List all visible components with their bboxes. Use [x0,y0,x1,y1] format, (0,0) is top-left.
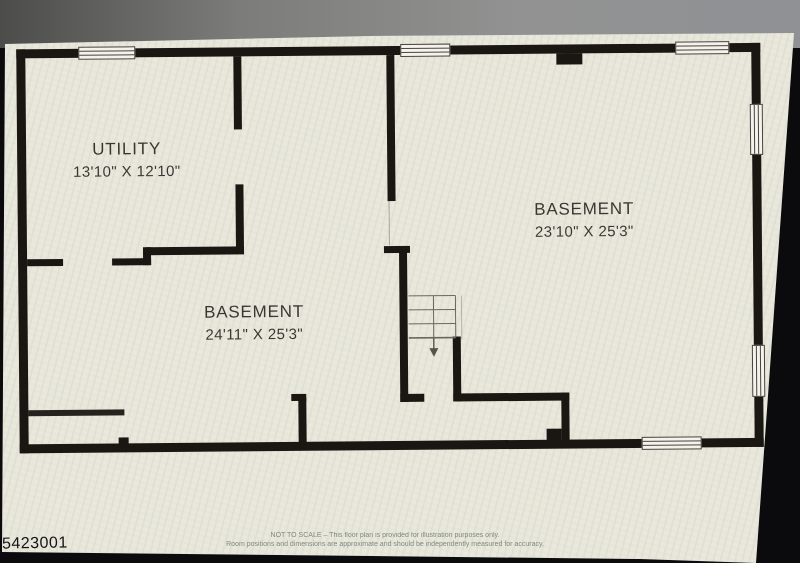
partition-end-bump [119,437,129,444]
wall-lower-horizontal [453,393,569,402]
wall-lower-vertical [561,393,569,441]
wall-utility-bottom-right [146,246,244,255]
staircase-symbol [401,287,466,360]
wall-utility-bottom-mid [112,258,151,265]
window-symbol-top-middle [400,44,450,57]
wall-alcove-cap [291,394,306,401]
room-name: BASEMENT [166,302,341,324]
wall-stair-left-foot [400,394,424,402]
window-symbol-right-lower [752,345,765,397]
wall-alcove-vertical [298,398,306,443]
window-symbol-top-right [675,41,729,54]
wall-utility-bottom-left [27,259,63,266]
wall-exterior-left [16,49,29,453]
wall-center-divider-upper [386,55,395,201]
window-symbol-top-left [78,46,135,59]
basement-floor-plan: UTILITY 13'10" X 12'10" BASEMENT 24'11" … [0,0,800,563]
disclaimer-note: NOT TO SCALE – This floor plan is provid… [150,531,620,549]
listing-id-watermark: 5423001 [2,534,68,553]
wall-lower-notch [547,429,562,441]
door-opening-line [389,201,390,245]
room-label-utility: UTILITY 13'10" X 12'10" [39,139,214,182]
room-label-basement-right: BASEMENT 23'10" X 25'3" [497,199,672,242]
window-symbol-bottom-right [642,436,702,450]
room-dimensions: 23'10" X 25'3" [497,223,672,242]
chimney-stub [556,53,582,64]
photo-of-floor-plan: UTILITY 13'10" X 12'10" BASEMENT 24'11" … [0,0,800,563]
room-name: UTILITY [39,139,214,161]
disclaimer-line-1: NOT TO SCALE – This floor plan is provid… [150,531,620,540]
stairs-down-arrow-icon [429,338,438,357]
room-dimensions: 13'10" X 12'10" [39,163,214,182]
wall-utility-right-lower [235,184,244,253]
room-label-basement-center: BASEMENT 24'11" X 25'3" [166,302,341,345]
floor-plan-sheet: UTILITY 13'10" X 12'10" BASEMENT 24'11" … [0,0,800,563]
half-wall-partition [28,409,124,416]
disclaimer-line-2: Room positions and dimensions are approx… [150,540,620,549]
room-dimensions: 24'11" X 25'3" [167,326,342,345]
room-name: BASEMENT [497,199,672,221]
window-symbol-right-upper [750,104,763,155]
wall-utility-right-upper [233,56,242,129]
